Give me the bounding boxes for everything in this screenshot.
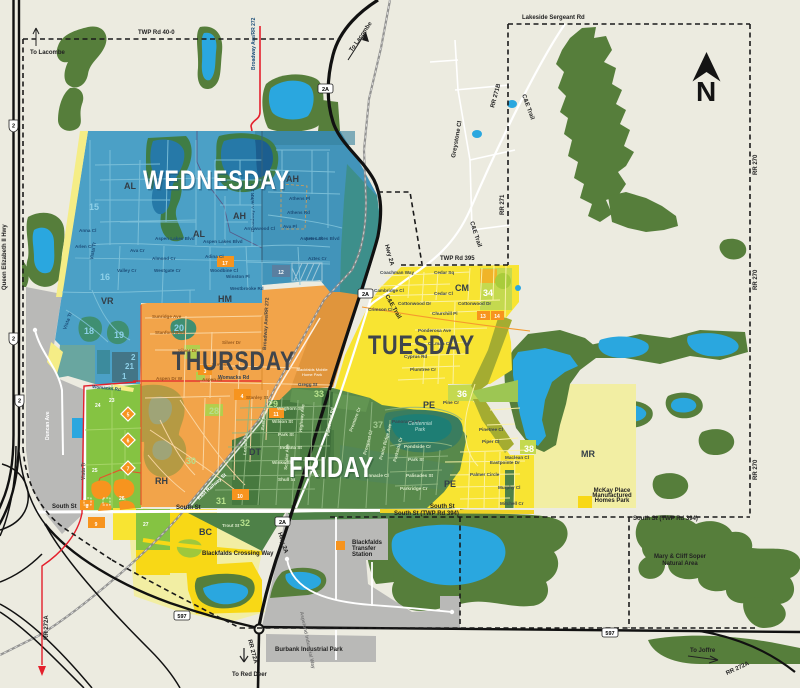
- svg-text:1: 1: [122, 372, 127, 381]
- svg-text:To Joffre: To Joffre: [690, 648, 716, 654]
- svg-text:Cottonwood Dr: Cottonwood Dr: [398, 301, 431, 306]
- svg-text:Gregg St: Gregg St: [298, 382, 318, 387]
- svg-text:VR: VR: [101, 296, 114, 306]
- svg-text:Aspen Lakes Blvd: Aspen Lakes Blvd: [203, 239, 243, 244]
- svg-text:PE: PE: [423, 400, 435, 410]
- svg-text:Coachman Way: Coachman Way: [380, 270, 414, 275]
- svg-text:10: 10: [237, 494, 243, 500]
- svg-text:31: 31: [216, 496, 226, 506]
- svg-text:13: 13: [480, 314, 486, 320]
- svg-text:Park St: Park St: [278, 432, 294, 437]
- svg-text:N: N: [696, 76, 716, 107]
- svg-text:RH: RH: [155, 476, 168, 486]
- svg-text:2A: 2A: [362, 292, 369, 298]
- svg-text:Athens Pl: Athens Pl: [289, 196, 310, 201]
- svg-text:Ava Pl: Ava Pl: [283, 224, 297, 229]
- svg-text:36: 36: [457, 389, 467, 399]
- svg-text:Maclean Cl: Maclean Cl: [505, 455, 529, 460]
- svg-text:Aspen Dr W: Aspen Dr W: [156, 376, 183, 381]
- svg-text:Eastpointe Dr: Eastpointe Dr: [490, 460, 520, 465]
- svg-text:38: 38: [524, 444, 534, 454]
- svg-text:Wilson St: Wilson St: [272, 419, 293, 424]
- svg-text:RR 270: RR 270: [753, 154, 759, 175]
- svg-text:21: 21: [125, 362, 134, 371]
- svg-text:Parkridge Cr: Parkridge Cr: [400, 486, 428, 491]
- svg-text:597: 597: [605, 631, 614, 637]
- svg-text:South St (TWP Rd 394): South St (TWP Rd 394): [633, 516, 698, 522]
- svg-text:TUESDAY: TUESDAY: [368, 330, 475, 360]
- svg-text:CM: CM: [455, 283, 469, 293]
- svg-text:To Red Deer: To Red Deer: [232, 672, 268, 678]
- svg-text:Cottonwood Dr: Cottonwood Dr: [458, 301, 491, 306]
- svg-text:Trout St: Trout St: [222, 523, 240, 528]
- svg-text:Almond Cr: Almond Cr: [152, 256, 176, 261]
- svg-text:To Lacombe: To Lacombe: [30, 50, 66, 56]
- svg-text:Home Park: Home Park: [302, 372, 322, 377]
- svg-text:Natural Area: Natural Area: [662, 561, 698, 567]
- svg-text:Pinetree Cl: Pinetree Cl: [479, 427, 503, 432]
- svg-text:Homes Park: Homes Park: [595, 498, 630, 504]
- svg-text:HM: HM: [218, 294, 232, 304]
- svg-text:25: 25: [92, 468, 98, 474]
- svg-text:TWP Rd 40-0: TWP Rd 40-0: [138, 30, 175, 36]
- svg-text:Arlen Cl: Arlen Cl: [75, 244, 93, 249]
- svg-text:Vista Tr: Vista Tr: [81, 462, 87, 480]
- svg-text:Westgate Cr: Westgate Cr: [154, 268, 181, 273]
- svg-text:RR 271: RR 271: [500, 194, 506, 215]
- svg-text:27: 27: [143, 522, 149, 528]
- svg-text:34: 34: [483, 288, 493, 298]
- svg-text:2: 2: [18, 399, 21, 405]
- svg-text:Woodbine Cl: Woodbine Cl: [210, 268, 238, 273]
- svg-text:Churchill Pl: Churchill Pl: [432, 311, 458, 316]
- svg-text:Queen Elizabeth II Hwy: Queen Elizabeth II Hwy: [2, 224, 8, 290]
- svg-text:Crimson Cl: Crimson Cl: [368, 307, 393, 312]
- svg-text:Mary & Cliff Soper: Mary & Cliff Soper: [654, 554, 707, 560]
- svg-text:Adina Cl: Adina Cl: [205, 254, 224, 259]
- svg-text:Pondside Cr: Pondside Cr: [404, 444, 431, 449]
- svg-text:Valley Cr: Valley Cr: [117, 268, 137, 273]
- svg-text:23: 23: [109, 398, 115, 404]
- svg-text:6: 6: [127, 439, 130, 445]
- svg-text:Park: Park: [415, 427, 426, 433]
- svg-text:Aztec St: Aztec St: [305, 236, 324, 241]
- svg-text:Aspen Dr: Aspen Dr: [202, 377, 223, 382]
- svg-text:24: 24: [95, 403, 101, 409]
- svg-text:32: 32: [240, 518, 250, 528]
- svg-text:Cedar Sq: Cedar Sq: [434, 270, 454, 275]
- svg-text:Aztec Cr: Aztec Cr: [308, 256, 327, 261]
- svg-text:TWP Rd 395: TWP Rd 395: [440, 256, 475, 262]
- svg-text:Athens Rd: Athens Rd: [287, 210, 310, 215]
- svg-text:Stanley St: Stanley St: [246, 395, 269, 400]
- svg-text:Murphy Cl: Murphy Cl: [498, 485, 520, 490]
- svg-text:RR 272A: RR 272A: [44, 615, 50, 640]
- svg-text:Indiana St: Indiana St: [280, 445, 302, 450]
- svg-text:DT: DT: [249, 447, 261, 457]
- svg-text:RR 270: RR 270: [753, 459, 759, 480]
- svg-text:Cedar Cl: Cedar Cl: [434, 291, 453, 296]
- svg-text:Anna Cl: Anna Cl: [79, 228, 96, 233]
- svg-text:Cambridge Cl: Cambridge Cl: [374, 288, 404, 293]
- svg-text:FRIDAY: FRIDAY: [289, 452, 374, 484]
- svg-text:Palisades St: Palisades St: [406, 473, 434, 478]
- svg-text:Arrowwood Cl: Arrowwood Cl: [244, 226, 275, 231]
- svg-text:18: 18: [84, 326, 94, 336]
- svg-text:South St: South St: [176, 505, 201, 511]
- svg-text:Westbrooke Rd: Westbrooke Rd: [230, 286, 264, 291]
- svg-text:Palmer Circle: Palmer Circle: [470, 472, 500, 477]
- svg-text:South St: South St: [430, 504, 455, 510]
- svg-text:7: 7: [127, 467, 130, 473]
- svg-text:26: 26: [119, 496, 125, 502]
- svg-text:Mitchell Cr: Mitchell Cr: [500, 501, 524, 506]
- svg-text:9: 9: [95, 522, 98, 528]
- svg-text:South St: South St: [52, 504, 77, 510]
- svg-text:AL: AL: [124, 181, 136, 191]
- svg-text:Pine Cr: Pine Cr: [443, 400, 459, 405]
- svg-text:MR: MR: [581, 449, 595, 459]
- svg-text:Ava Cr: Ava Cr: [130, 248, 145, 253]
- svg-text:30: 30: [186, 456, 196, 466]
- svg-text:2: 2: [12, 337, 15, 343]
- svg-text:2A: 2A: [279, 520, 286, 526]
- svg-text:AH: AH: [233, 211, 246, 221]
- svg-text:PE: PE: [444, 479, 456, 489]
- svg-text:15: 15: [89, 202, 99, 212]
- svg-text:19: 19: [114, 330, 124, 340]
- svg-text:33: 33: [314, 389, 324, 399]
- svg-text:Sunridge Ave: Sunridge Ave: [152, 314, 182, 319]
- svg-text:Aspen Lakes Blvd: Aspen Lakes Blvd: [155, 236, 195, 241]
- svg-text:16: 16: [100, 272, 110, 282]
- svg-text:28: 28: [209, 406, 219, 416]
- svg-text:597: 597: [177, 614, 186, 620]
- svg-text:37: 37: [373, 420, 383, 430]
- svg-text:14: 14: [494, 314, 500, 320]
- svg-text:4: 4: [241, 394, 244, 400]
- svg-text:Park St: Park St: [408, 457, 424, 462]
- svg-text:South St (TWP Rd 394): South St (TWP Rd 394): [394, 511, 459, 517]
- svg-text:5: 5: [127, 413, 130, 419]
- svg-text:Station: Station: [352, 552, 373, 558]
- svg-text:BC: BC: [199, 527, 212, 537]
- svg-text:Duncan Ave: Duncan Ave: [45, 411, 51, 440]
- svg-text:AL: AL: [193, 229, 205, 239]
- svg-text:THURSDAY: THURSDAY: [172, 346, 295, 376]
- svg-text:17: 17: [222, 261, 228, 267]
- svg-text:2: 2: [12, 124, 15, 130]
- svg-text:Plumtree Cr: Plumtree Cr: [410, 367, 436, 372]
- svg-text:Lakeside Sergeant Rd: Lakeside Sergeant Rd: [522, 15, 585, 21]
- svg-text:Winston Pl: Winston Pl: [226, 274, 250, 279]
- svg-text:2A: 2A: [322, 87, 329, 93]
- svg-text:Blackfalds Crossing Way: Blackfalds Crossing Way: [202, 551, 274, 557]
- svg-text:2: 2: [131, 353, 136, 362]
- svg-text:Piper Cl: Piper Cl: [482, 439, 499, 444]
- svg-text:11: 11: [273, 412, 279, 418]
- svg-text:Broadway Ave/RR 272: Broadway Ave/RR 272: [251, 17, 257, 70]
- svg-text:Stanford Blvd: Stanford Blvd: [155, 330, 185, 335]
- svg-text:RR 270: RR 270: [753, 269, 759, 290]
- svg-text:12: 12: [278, 270, 284, 276]
- svg-text:Silver Dr: Silver Dr: [222, 340, 241, 345]
- svg-text:WEDNESDAY: WEDNESDAY: [143, 165, 290, 195]
